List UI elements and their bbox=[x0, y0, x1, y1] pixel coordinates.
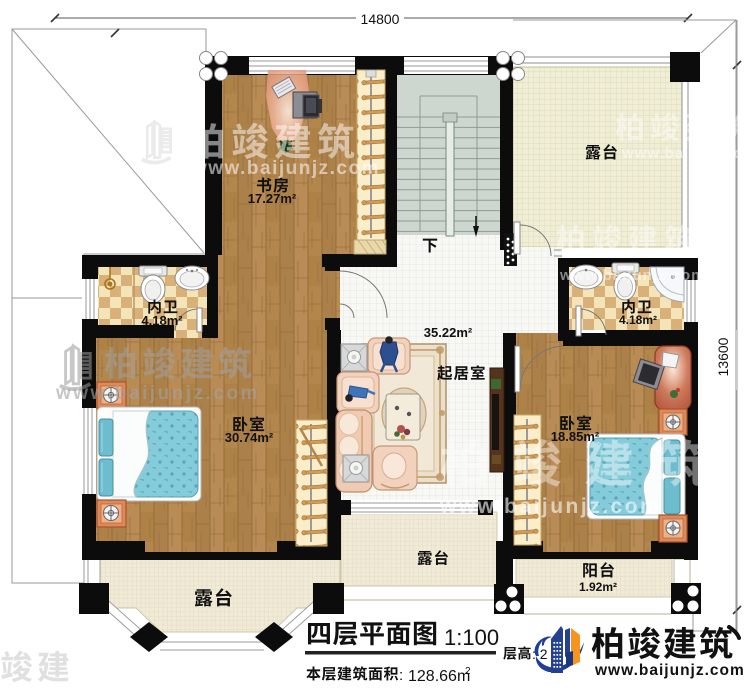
svg-text:www.baijunjz.com: www.baijunjz.com bbox=[55, 383, 260, 404]
svg-text:17.27m²: 17.27m² bbox=[248, 191, 297, 206]
svg-text:www.baijunjz.com: www.baijunjz.com bbox=[439, 495, 661, 518]
svg-text:2: 2 bbox=[465, 666, 471, 677]
svg-text:35.22m²: 35.22m² bbox=[424, 325, 473, 340]
svg-text:www.baijunjz.com: www.baijunjz.com bbox=[191, 158, 380, 179]
svg-text:www.baijunjz.com: www.baijunjz.com bbox=[559, 267, 705, 284]
svg-text:1.92m²: 1.92m² bbox=[579, 580, 617, 594]
svg-text:www.baijunjz.com: www.baijunjz.com bbox=[594, 662, 745, 679]
svg-text:128.66m: 128.66m bbox=[408, 668, 470, 685]
svg-text:30.74m²: 30.74m² bbox=[225, 430, 274, 445]
svg-text:14800: 14800 bbox=[361, 11, 400, 27]
svg-text:: 2: : 2 bbox=[532, 646, 548, 662]
svg-text:1:100: 1:100 bbox=[444, 625, 499, 650]
svg-text::: : bbox=[399, 667, 403, 684]
svg-text:13600: 13600 bbox=[715, 337, 731, 376]
svg-text:18.85m²: 18.85m² bbox=[551, 429, 600, 444]
svg-text:4.18m²: 4.18m² bbox=[619, 313, 657, 327]
svg-text:www.baijunjz.com: www.baijunjz.com bbox=[621, 145, 750, 162]
svg-text:4.18m²: 4.18m² bbox=[141, 313, 183, 328]
